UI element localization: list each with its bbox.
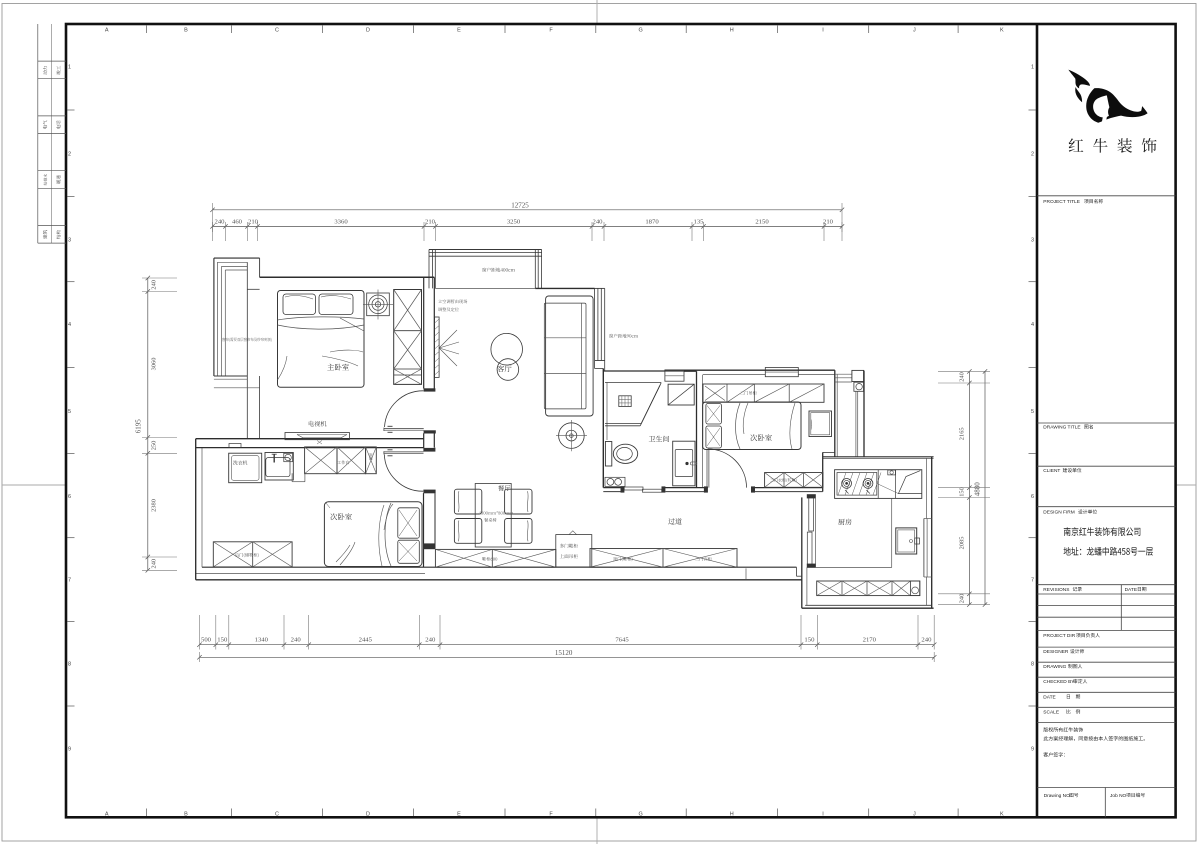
svg-text:PROJECT TITLE: PROJECT TITLE <box>1043 199 1080 205</box>
svg-text:B: B <box>184 28 188 34</box>
svg-text:240: 240 <box>214 218 225 225</box>
svg-text:150: 150 <box>958 487 965 497</box>
svg-text:J: J <box>913 812 916 818</box>
svg-text:3250: 3250 <box>507 218 521 225</box>
svg-text:8: 8 <box>68 662 71 668</box>
svg-text:DESIGN FIRM: DESIGN FIRM <box>1043 510 1074 516</box>
svg-text:DATE: DATE <box>1043 694 1055 700</box>
svg-text:1: 1 <box>68 65 71 71</box>
svg-text:6: 6 <box>1031 494 1034 500</box>
svg-text:K: K <box>1000 812 1004 818</box>
svg-text:7645: 7645 <box>615 637 629 644</box>
svg-text:9: 9 <box>1031 746 1034 752</box>
svg-text:1870: 1870 <box>645 218 659 225</box>
svg-text:250: 250 <box>151 441 158 451</box>
svg-text:CHECKED BY: CHECKED BY <box>1043 679 1075 685</box>
svg-text:DATE: DATE <box>1125 587 1137 593</box>
svg-text:7: 7 <box>68 578 71 584</box>
svg-text:240: 240 <box>425 637 436 644</box>
svg-text:Job NO: Job NO <box>1110 793 1127 799</box>
svg-text:I: I <box>822 28 824 34</box>
svg-text:2170: 2170 <box>863 637 877 644</box>
svg-text:500: 500 <box>201 637 212 644</box>
svg-text:D: D <box>366 812 370 818</box>
svg-text:REVISIONS: REVISIONS <box>1043 587 1069 593</box>
svg-text:150: 150 <box>804 637 815 644</box>
svg-text:2085: 2085 <box>958 537 965 550</box>
svg-text:A: A <box>105 812 109 818</box>
svg-text:DRAWING: DRAWING <box>1043 664 1066 670</box>
svg-text:2: 2 <box>1031 151 1034 157</box>
svg-text:Drawing NO: Drawing NO <box>1044 793 1070 799</box>
svg-text:240: 240 <box>921 637 932 644</box>
svg-text:2: 2 <box>68 151 71 157</box>
svg-text:C: C <box>275 812 279 818</box>
svg-text:2165: 2165 <box>958 427 965 440</box>
svg-text:12725: 12725 <box>511 201 529 209</box>
svg-text:4: 4 <box>1031 322 1034 328</box>
svg-text:H: H <box>730 28 734 34</box>
svg-text:3: 3 <box>1031 237 1034 243</box>
svg-text:460: 460 <box>232 218 243 225</box>
svg-text:6: 6 <box>68 494 71 500</box>
svg-text:3: 3 <box>68 237 71 243</box>
svg-text:D: D <box>366 28 370 34</box>
svg-text:K: K <box>1000 28 1004 34</box>
svg-text:4: 4 <box>68 322 71 328</box>
svg-text:240: 240 <box>958 372 965 382</box>
svg-text:15120: 15120 <box>555 649 573 657</box>
svg-text:8: 8 <box>1031 662 1034 668</box>
svg-text:210: 210 <box>823 218 834 225</box>
svg-text:B: B <box>184 812 188 818</box>
svg-text:1: 1 <box>1031 65 1034 71</box>
svg-text:5: 5 <box>68 409 71 415</box>
svg-text:E: E <box>457 28 461 34</box>
svg-text:4880: 4880 <box>973 482 981 497</box>
svg-text:G: G <box>638 28 642 34</box>
svg-text:H: H <box>730 812 734 818</box>
svg-text:240: 240 <box>151 559 158 569</box>
svg-text:J: J <box>913 28 916 34</box>
svg-text:1340: 1340 <box>255 637 269 644</box>
svg-text:135: 135 <box>693 218 704 225</box>
svg-text:210: 210 <box>248 218 259 225</box>
svg-text:240: 240 <box>958 594 965 604</box>
svg-text:240: 240 <box>291 637 302 644</box>
svg-text:7: 7 <box>1031 578 1034 584</box>
svg-text:DESIGNER: DESIGNER <box>1043 649 1069 655</box>
svg-text:210: 210 <box>425 218 436 225</box>
svg-text:2150: 2150 <box>755 218 769 225</box>
svg-text:240: 240 <box>592 218 603 225</box>
svg-text:6195: 6195 <box>135 419 143 434</box>
svg-text:2445: 2445 <box>359 637 373 644</box>
svg-text:2380: 2380 <box>151 499 158 512</box>
svg-text:150: 150 <box>217 637 228 644</box>
svg-text:CLIENT: CLIENT <box>1043 468 1060 474</box>
svg-text:G: G <box>638 812 642 818</box>
svg-text:SCALE: SCALE <box>1043 709 1059 715</box>
svg-text:3360: 3360 <box>334 218 348 225</box>
svg-text:9: 9 <box>68 746 71 752</box>
svg-text:3060: 3060 <box>151 358 158 371</box>
svg-text:A: A <box>105 28 109 34</box>
svg-text:5: 5 <box>1031 409 1034 415</box>
svg-text:C: C <box>275 28 279 34</box>
svg-text:240: 240 <box>151 280 158 290</box>
svg-text:E: E <box>457 812 461 818</box>
svg-text:DRAWING TITLE: DRAWING TITLE <box>1043 425 1080 431</box>
svg-text:F: F <box>549 28 553 34</box>
svg-text:PROJECT DIR: PROJECT DIR <box>1043 633 1075 639</box>
